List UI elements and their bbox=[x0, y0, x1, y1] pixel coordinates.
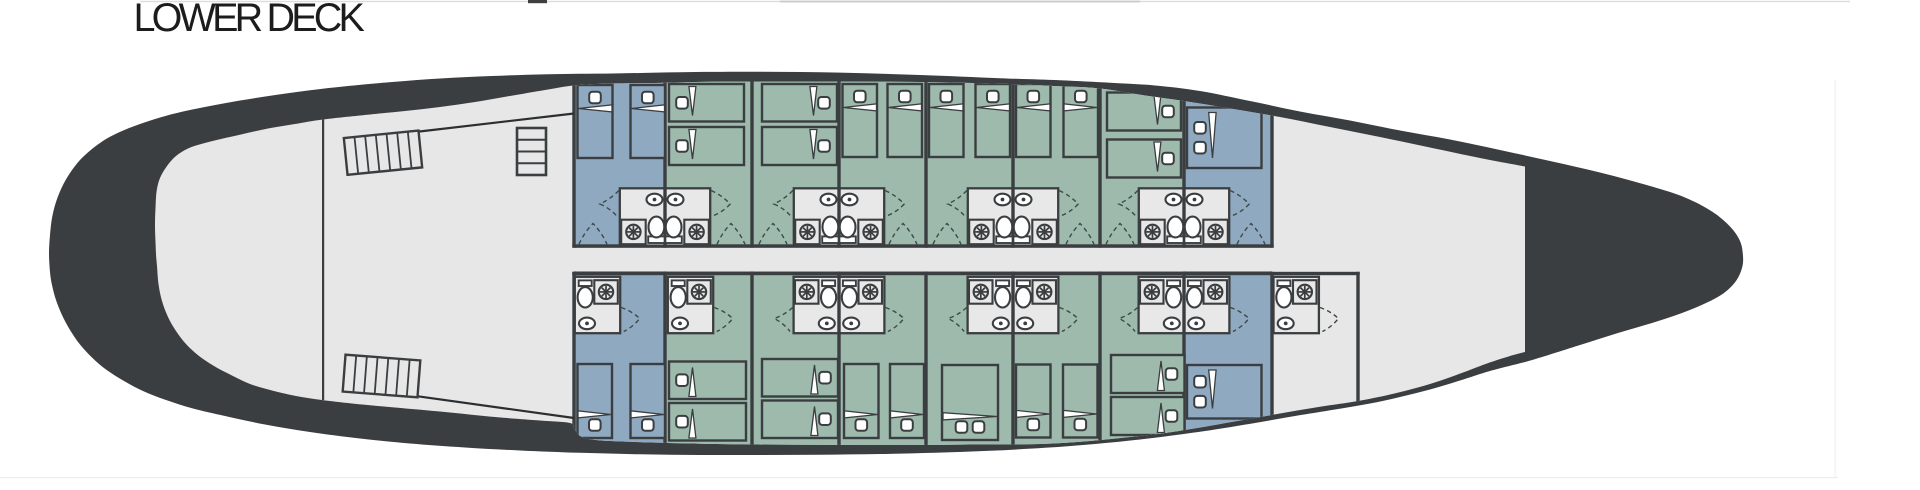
svg-text:LOWER DECK: LOWER DECK bbox=[134, 0, 365, 40]
